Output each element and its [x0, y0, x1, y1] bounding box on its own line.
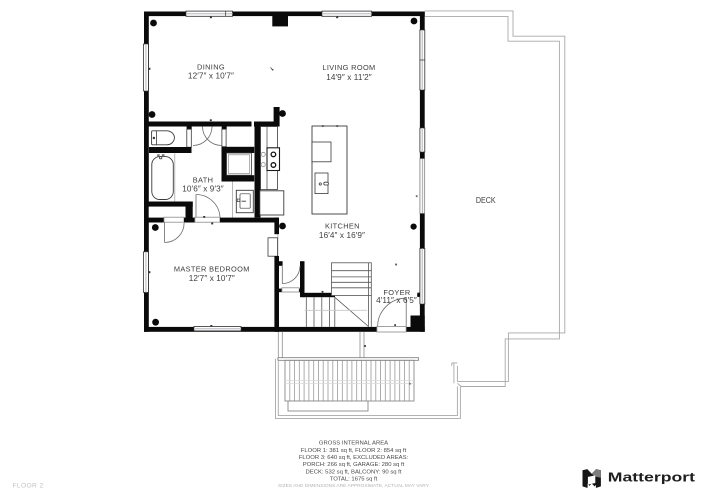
- svg-text:DECK: 532 sq ft, BALCONY: 90 s: DECK: 532 sq ft, BALCONY: 90 sq ft: [306, 469, 402, 475]
- svg-text:GROSS INTERNAL AREA: GROSS INTERNAL AREA: [319, 441, 388, 447]
- svg-text:DINING: DINING: [197, 62, 225, 71]
- svg-text:BATH: BATH: [193, 176, 214, 185]
- svg-text:TOTAL: 1675 sq ft: TOTAL: 1675 sq ft: [330, 477, 378, 483]
- svg-text:LIVING ROOM: LIVING ROOM: [322, 63, 375, 72]
- svg-text:10′6″ x 9′3″: 10′6″ x 9′3″: [182, 184, 223, 193]
- svg-text:MASTER BEDROOM: MASTER BEDROOM: [174, 265, 250, 274]
- svg-text:FLOOR 3: 640 sq ft, EXCLUDED A: FLOOR 3: 640 sq ft, EXCLUDED AREAS:: [299, 455, 409, 461]
- svg-text:14′9″ x 11′2″: 14′9″ x 11′2″: [326, 73, 372, 82]
- svg-text:16′4″ x 16′9″: 16′4″ x 16′9″: [319, 231, 365, 240]
- svg-text:FLOOR 2: FLOOR 2: [13, 483, 44, 490]
- svg-text:SIZES AND DIMENSIONS ARE APPRO: SIZES AND DIMENSIONS ARE APPROXIMATE, AC…: [278, 483, 430, 489]
- svg-text:DECK: DECK: [476, 195, 496, 205]
- svg-text:FLOOR 1: 381 sq ft, FLOOR 2: 8: FLOOR 1: 381 sq ft, FLOOR 2: 854 sq ft: [301, 448, 407, 454]
- svg-text:4′11″ x 6′5″: 4′11″ x 6′5″: [376, 296, 417, 305]
- svg-text:Matterport: Matterport: [608, 470, 696, 485]
- svg-text:PORCH: 266 sq ft, GARAGE: 280: PORCH: 266 sq ft, GARAGE: 280 sq ft: [303, 462, 405, 468]
- svg-text:12′7″ x 10′7″: 12′7″ x 10′7″: [188, 71, 234, 80]
- svg-text:KITCHEN: KITCHEN: [325, 222, 360, 231]
- svg-text:12′7″ x 10′7″: 12′7″ x 10′7″: [189, 274, 235, 283]
